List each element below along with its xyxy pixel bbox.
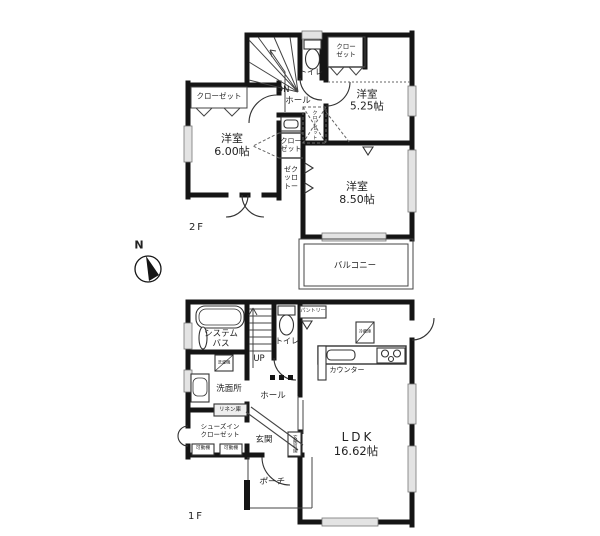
window	[408, 384, 416, 424]
stove-burner	[389, 357, 394, 362]
door-arc	[249, 95, 277, 123]
kitchen-sink-icon	[327, 350, 355, 360]
stairs-up-arrow	[249, 308, 257, 368]
linen-closet-box	[214, 404, 247, 416]
hall-pillar-dot	[279, 375, 284, 380]
pantry-box	[300, 306, 326, 318]
washbasin-bowl	[193, 378, 207, 396]
pantry-triangle	[302, 321, 312, 329]
closet-divider	[279, 133, 303, 158]
window	[408, 446, 416, 492]
movable-shelf-box	[192, 444, 214, 455]
hall-pillar-dot	[288, 375, 293, 380]
balcony-inner	[304, 244, 408, 286]
hall-cabinet-inner	[284, 120, 298, 128]
sliding-door-line	[298, 396, 303, 434]
floorplan-page: N 2F クローゼット 洋室 6.00帖 クロー ゼット ゼク ッロ トー クロ…	[0, 0, 600, 536]
bathtub-inner	[199, 309, 241, 325]
door-arc	[326, 82, 350, 106]
sliding-door-triangle	[363, 147, 373, 155]
bath-folding-door-icon	[199, 327, 207, 349]
movable-shelf-box	[220, 444, 242, 455]
sliding-door-triangle	[305, 183, 313, 193]
door-arc	[178, 426, 188, 446]
stove-burner	[382, 350, 389, 357]
kitchen-counter-return	[318, 346, 326, 380]
door-arc	[262, 457, 290, 485]
window	[408, 86, 416, 116]
walls-2f	[188, 33, 412, 239]
balcony-outline	[299, 239, 413, 289]
porch-wall-stub	[244, 480, 250, 510]
hanger-marks	[330, 67, 363, 75]
stove-burner	[394, 350, 401, 357]
window	[322, 518, 378, 526]
folding-door-dashes	[253, 133, 279, 158]
toilet-bowl-icon	[306, 49, 320, 69]
balcony-outer	[299, 239, 413, 289]
toilet-tank-icon	[304, 40, 321, 49]
stairs-2f	[249, 37, 298, 112]
door-arc	[242, 195, 264, 217]
toilet-bowl-icon	[280, 315, 294, 335]
window	[322, 233, 386, 241]
stairs-1f	[249, 308, 272, 368]
compass-icon	[135, 256, 161, 282]
floorplan-drawing	[0, 0, 600, 536]
window	[302, 31, 322, 39]
door-arc	[412, 318, 434, 340]
closet-box	[328, 37, 365, 67]
hall-pillar-dot	[270, 375, 275, 380]
wall	[303, 143, 412, 237]
window	[408, 150, 416, 212]
window	[184, 126, 192, 162]
door-arc	[300, 78, 322, 100]
closet-box	[191, 87, 247, 108]
sliding-door-triangle	[305, 163, 313, 173]
hanger-marks	[196, 108, 240, 116]
window	[184, 323, 192, 349]
toilet-tank-icon	[278, 306, 295, 315]
stairs-treads	[249, 309, 272, 351]
wall	[326, 35, 365, 143]
